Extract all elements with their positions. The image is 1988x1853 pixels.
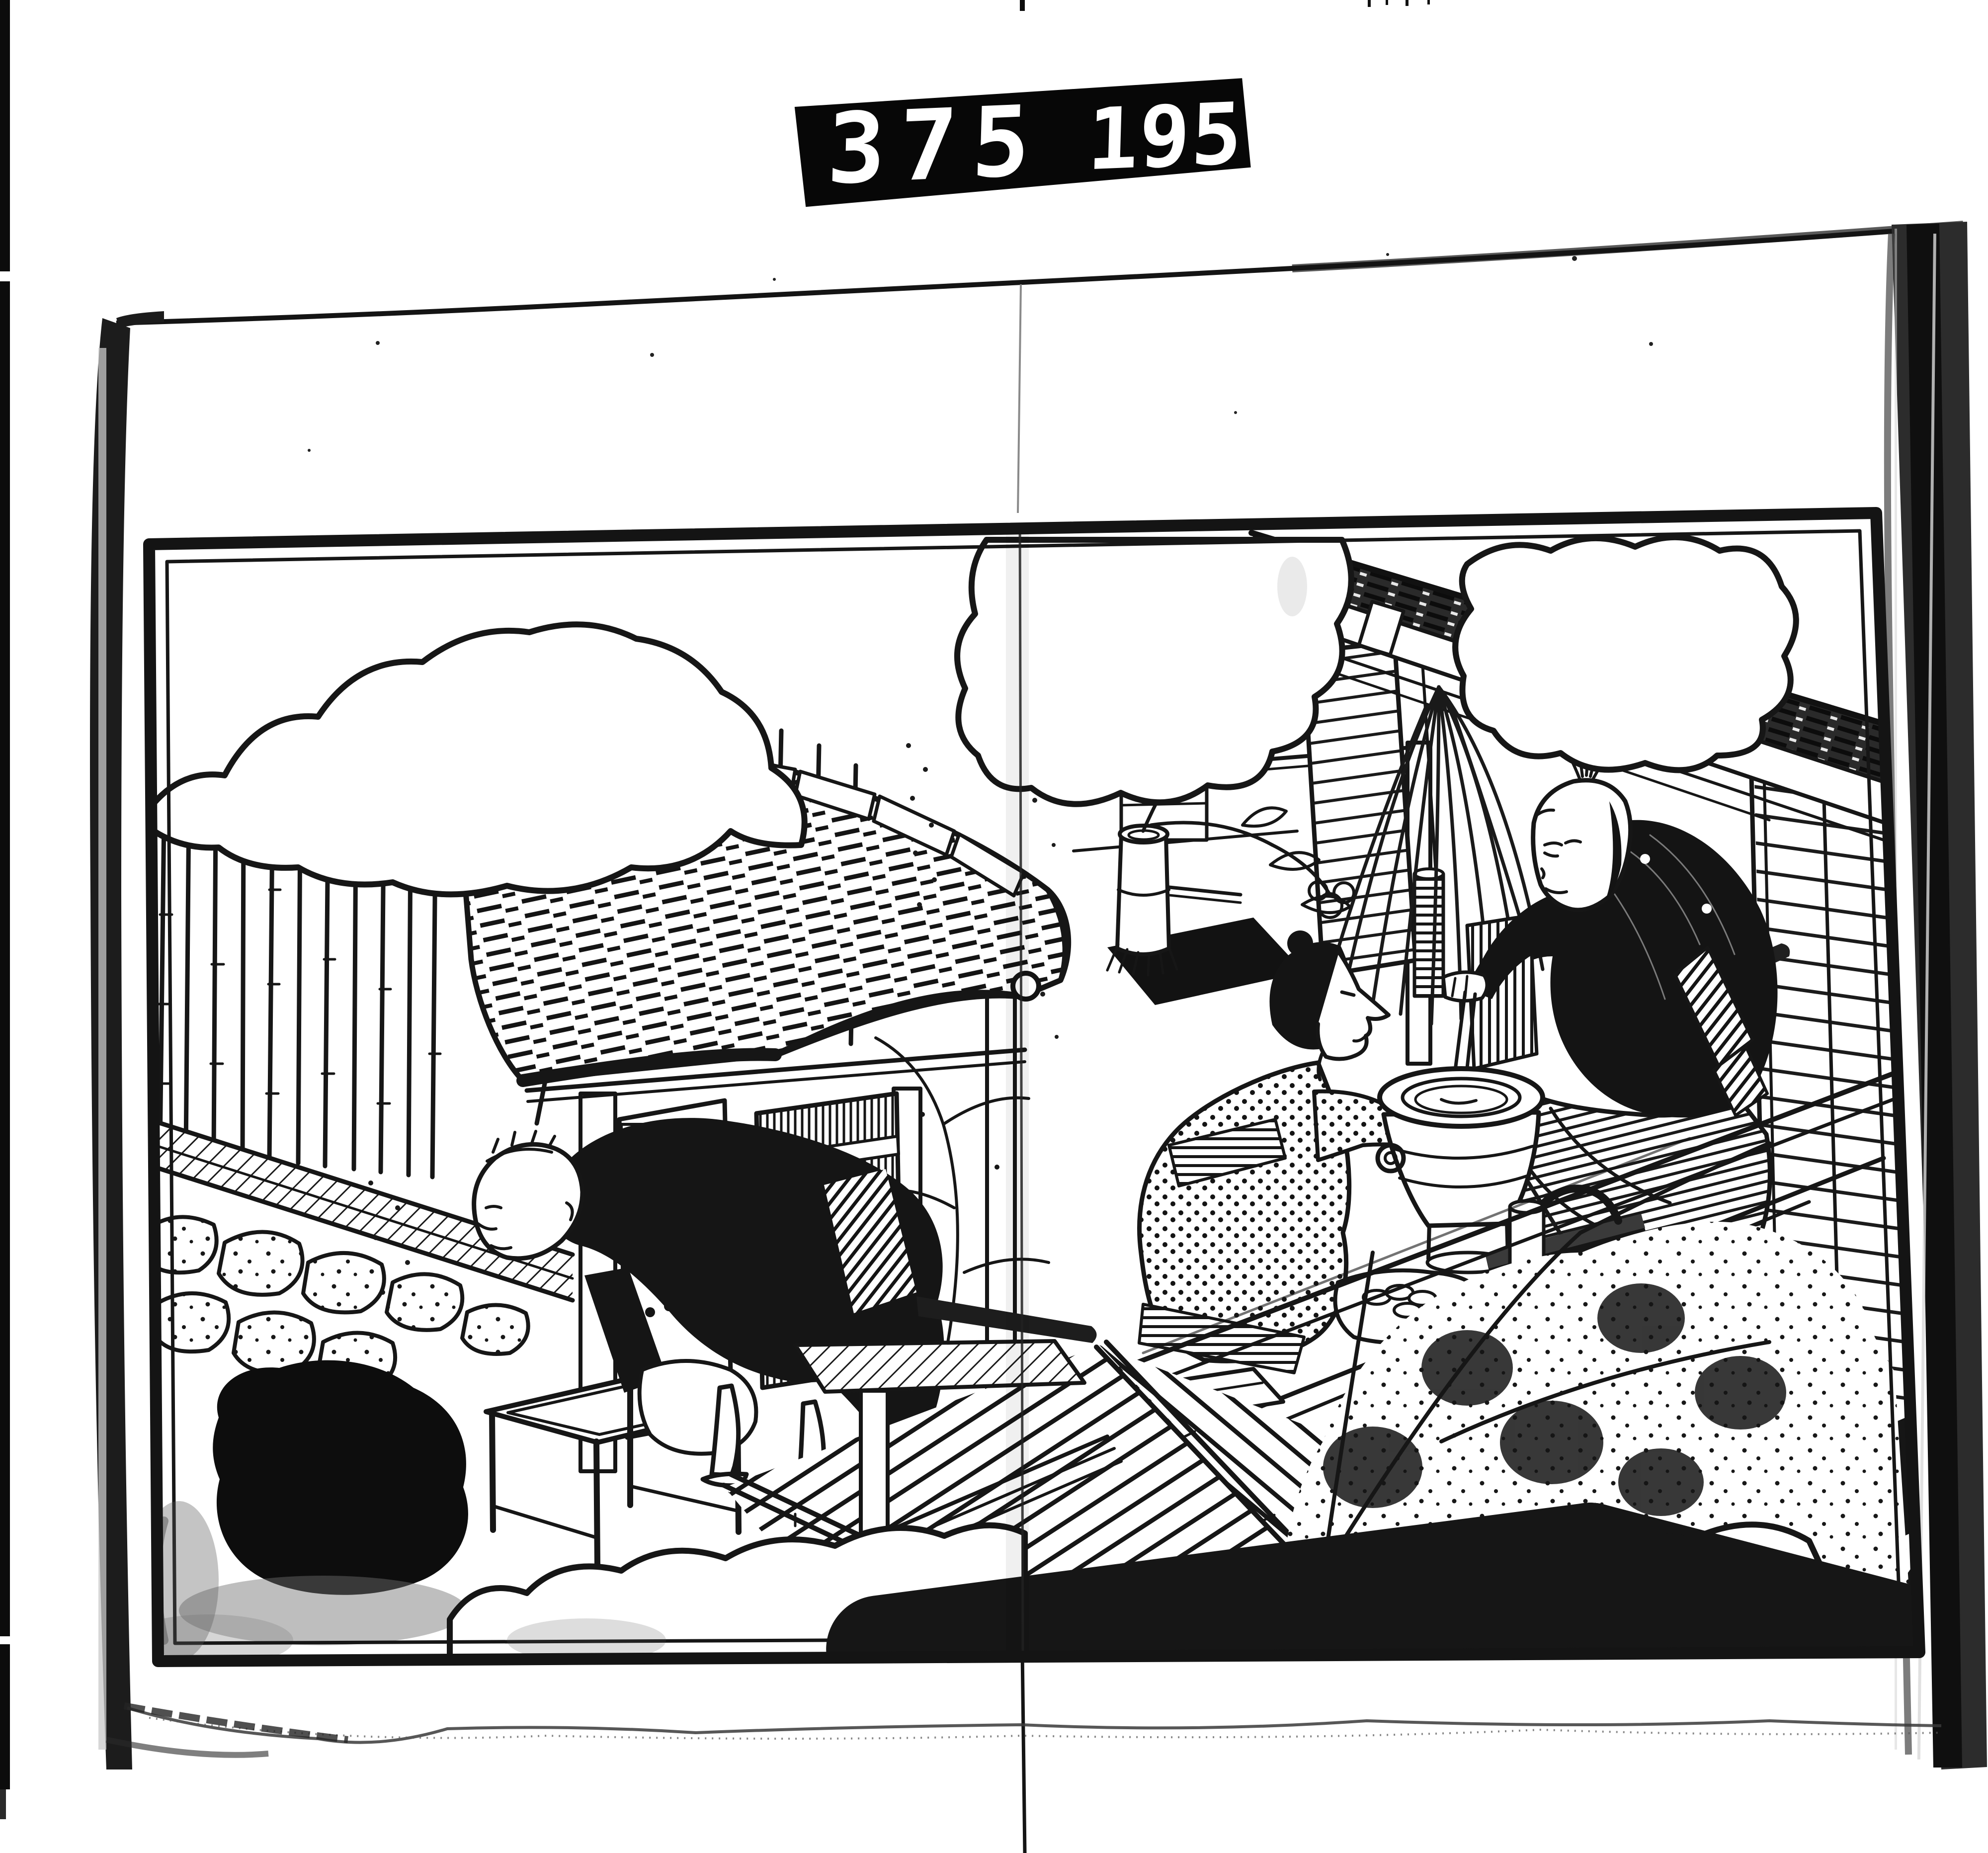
book-bottom-edge xyxy=(124,1706,1941,1743)
scanned-book-photograph: 375 195 . xyxy=(0,0,1988,1853)
top-center-fold-tick xyxy=(1020,0,1025,11)
gutter-fold-upper xyxy=(1018,284,1021,513)
gutter-fold-lower xyxy=(1022,1652,1025,1853)
book-top-edge xyxy=(116,226,1964,323)
counter-right-digits: 195 xyxy=(1086,84,1244,189)
scan-canvas: 375 195 . xyxy=(0,0,1988,1853)
gutter-shadow xyxy=(1006,513,1029,1656)
counter-decimal-mark: . xyxy=(1271,97,1313,174)
top-right-ticks xyxy=(1368,0,1430,7)
film-frame-counter: 375 195 . xyxy=(794,74,1314,208)
illustration-plate xyxy=(124,502,1988,1853)
bamboo-corner-post xyxy=(1414,869,1443,996)
counter-left-digits: 375 xyxy=(826,84,1045,206)
left-film-edge-bar xyxy=(0,0,10,1789)
cloud-top-right xyxy=(1455,537,1796,770)
